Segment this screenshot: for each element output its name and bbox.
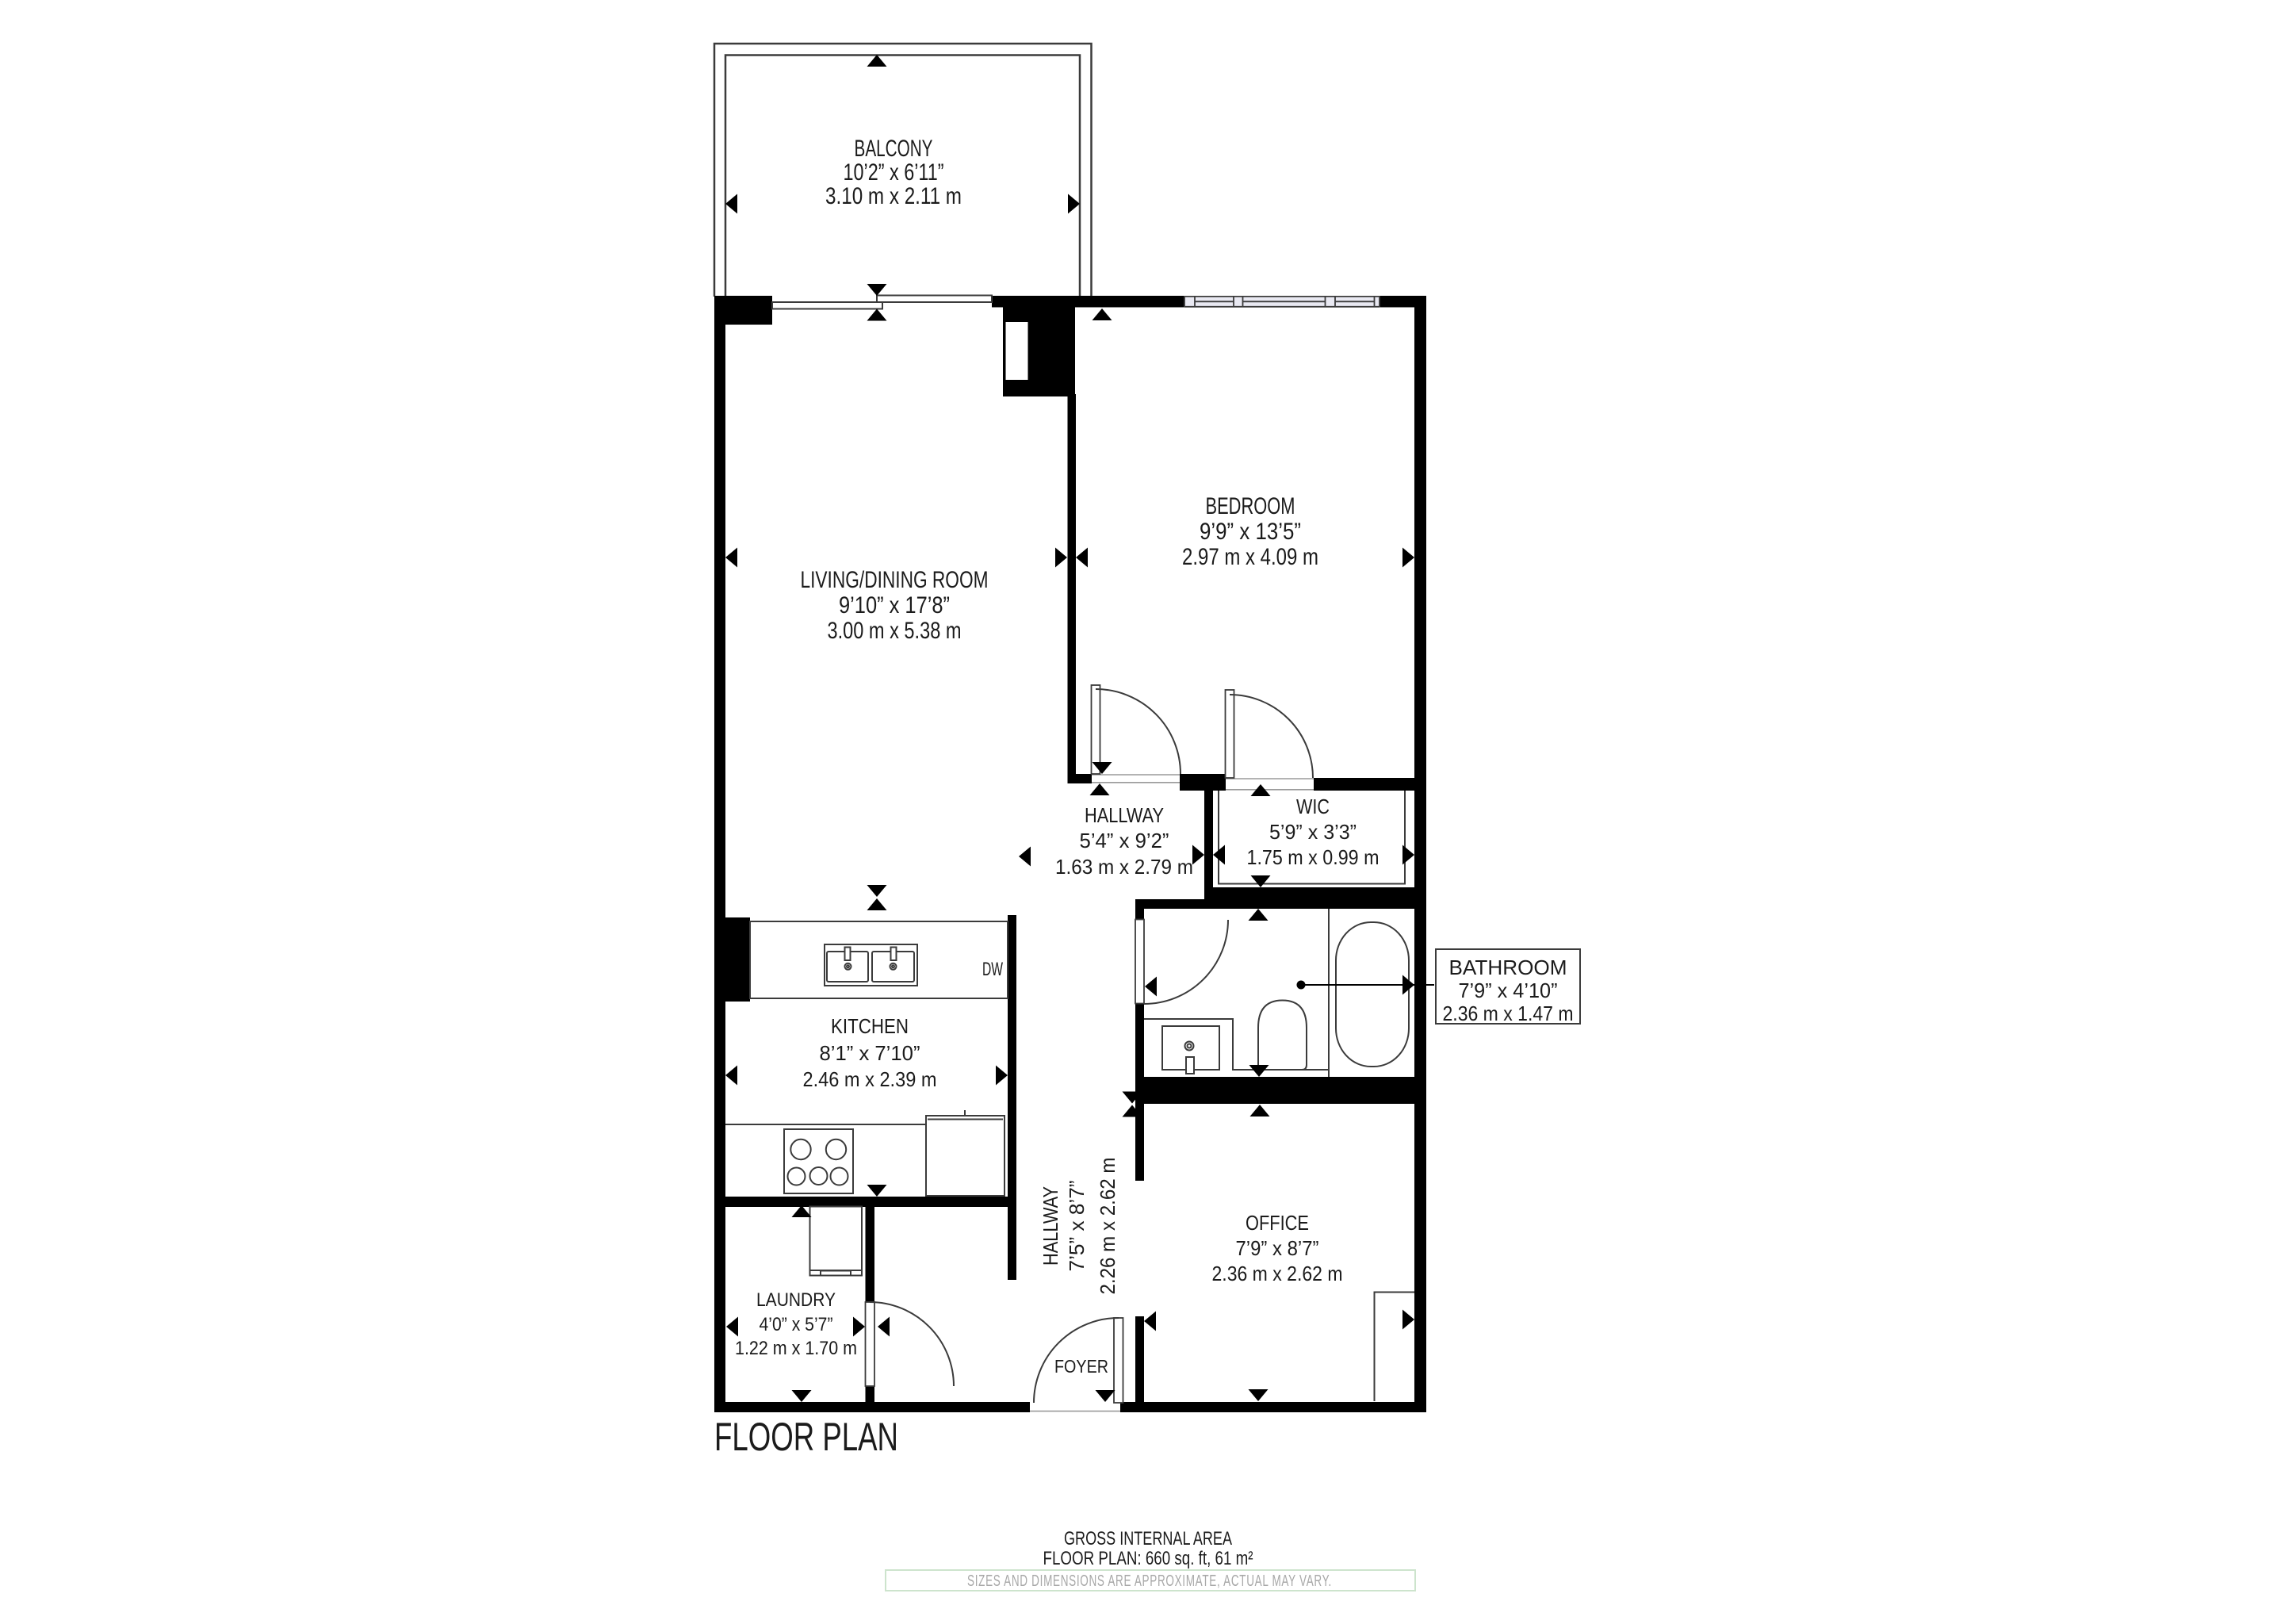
svg-text:DW: DW: [982, 959, 1003, 980]
svg-text:8’1” x 7’10”: 8’1” x 7’10”: [820, 1041, 920, 1065]
svg-text:BALCONY: BALCONY: [855, 136, 933, 162]
svg-text:2.36 m x 2.62 m: 2.36 m x 2.62 m: [1212, 1262, 1343, 1285]
svg-text:1.63 m x 2.79 m: 1.63 m x 2.79 m: [1055, 855, 1193, 879]
svg-text:4’0” x 5’7”: 4’0” x 5’7”: [760, 1314, 833, 1335]
svg-text:7’5” x 8’7”: 7’5” x 8’7”: [1065, 1181, 1089, 1272]
svg-text:3.00 m x 5.38 m: 3.00 m x 5.38 m: [828, 618, 962, 644]
svg-text:1.22 m x 1.70 m: 1.22 m x 1.70 m: [735, 1338, 857, 1359]
svg-text:10’2” x 6’11”: 10’2” x 6’11”: [844, 159, 944, 186]
svg-text:HALLWAY: HALLWAY: [1039, 1186, 1062, 1266]
svg-text:SIZES AND DIMENSIONS ARE APPRO: SIZES AND DIMENSIONS ARE APPROXIMATE, AC…: [967, 1572, 1332, 1590]
svg-text:GROSS INTERNAL AREA: GROSS INTERNAL AREA: [1064, 1528, 1232, 1549]
svg-text:KITCHEN: KITCHEN: [831, 1014, 909, 1038]
svg-text:WIC: WIC: [1296, 795, 1330, 818]
svg-text:1.75 m x 0.99 m: 1.75 m x 0.99 m: [1247, 845, 1380, 869]
svg-text:FOYER: FOYER: [1054, 1356, 1108, 1377]
svg-text:BEDROOM: BEDROOM: [1206, 493, 1295, 519]
svg-text:7’9” x 4’10”: 7’9” x 4’10”: [1459, 979, 1558, 1002]
svg-text:7’9” x 8’7”: 7’9” x 8’7”: [1236, 1236, 1319, 1260]
svg-text:FLOOR PLAN: FLOOR PLAN: [714, 1415, 898, 1459]
svg-text:LIVING/DINING ROOM: LIVING/DINING ROOM: [801, 567, 989, 593]
svg-text:HALLWAY: HALLWAY: [1085, 803, 1164, 827]
svg-text:2.26 m x 2.62 m: 2.26 m x 2.62 m: [1096, 1158, 1119, 1295]
svg-text:3.10 m x 2.11 m: 3.10 m x 2.11 m: [825, 183, 962, 209]
svg-text:9’9” x 13’5”: 9’9” x 13’5”: [1200, 519, 1301, 545]
svg-text:BATHROOM: BATHROOM: [1449, 956, 1567, 979]
svg-text:5’9” x 3’3”: 5’9” x 3’3”: [1269, 820, 1357, 844]
svg-text:5’4” x 9’2”: 5’4” x 9’2”: [1080, 829, 1169, 852]
svg-text:9’10” x 17’8”: 9’10” x 17’8”: [839, 592, 950, 619]
svg-text:OFFICE: OFFICE: [1246, 1211, 1309, 1235]
svg-text:2.36 m x 1.47 m: 2.36 m x 1.47 m: [1443, 1002, 1574, 1025]
svg-text:LAUNDRY: LAUNDRY: [756, 1289, 836, 1311]
svg-text:FLOOR PLAN: 660 sq. ft, 61 m²: FLOOR PLAN: 660 sq. ft, 61 m²: [1043, 1548, 1253, 1569]
svg-text:2.46 m x 2.39 m: 2.46 m x 2.39 m: [803, 1067, 937, 1091]
svg-text:2.97 m x 4.09 m: 2.97 m x 4.09 m: [1182, 544, 1318, 570]
